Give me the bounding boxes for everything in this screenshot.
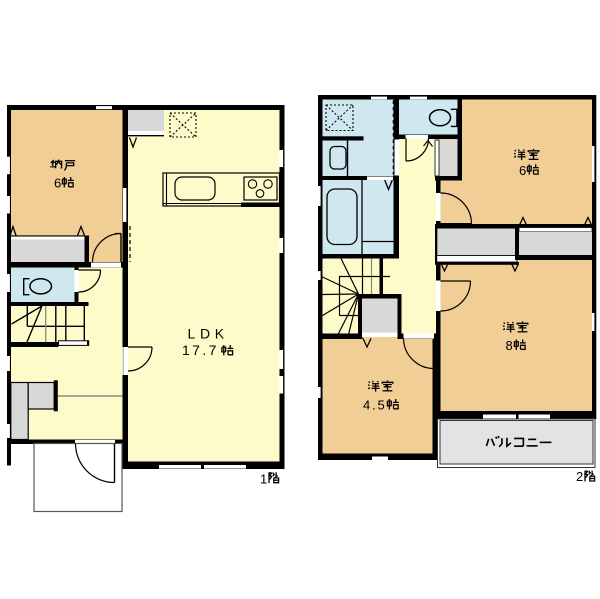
svg-text:2: 2	[576, 469, 583, 484]
svg-text:4.5: 4.5	[363, 398, 386, 413]
svg-text:1: 1	[260, 471, 267, 486]
svg-text:6: 6	[519, 163, 526, 178]
svg-text:17.7: 17.7	[182, 342, 219, 358]
svg-text:LDK: LDK	[188, 326, 229, 342]
svg-text:6: 6	[54, 175, 61, 190]
svg-text:8: 8	[506, 338, 513, 353]
